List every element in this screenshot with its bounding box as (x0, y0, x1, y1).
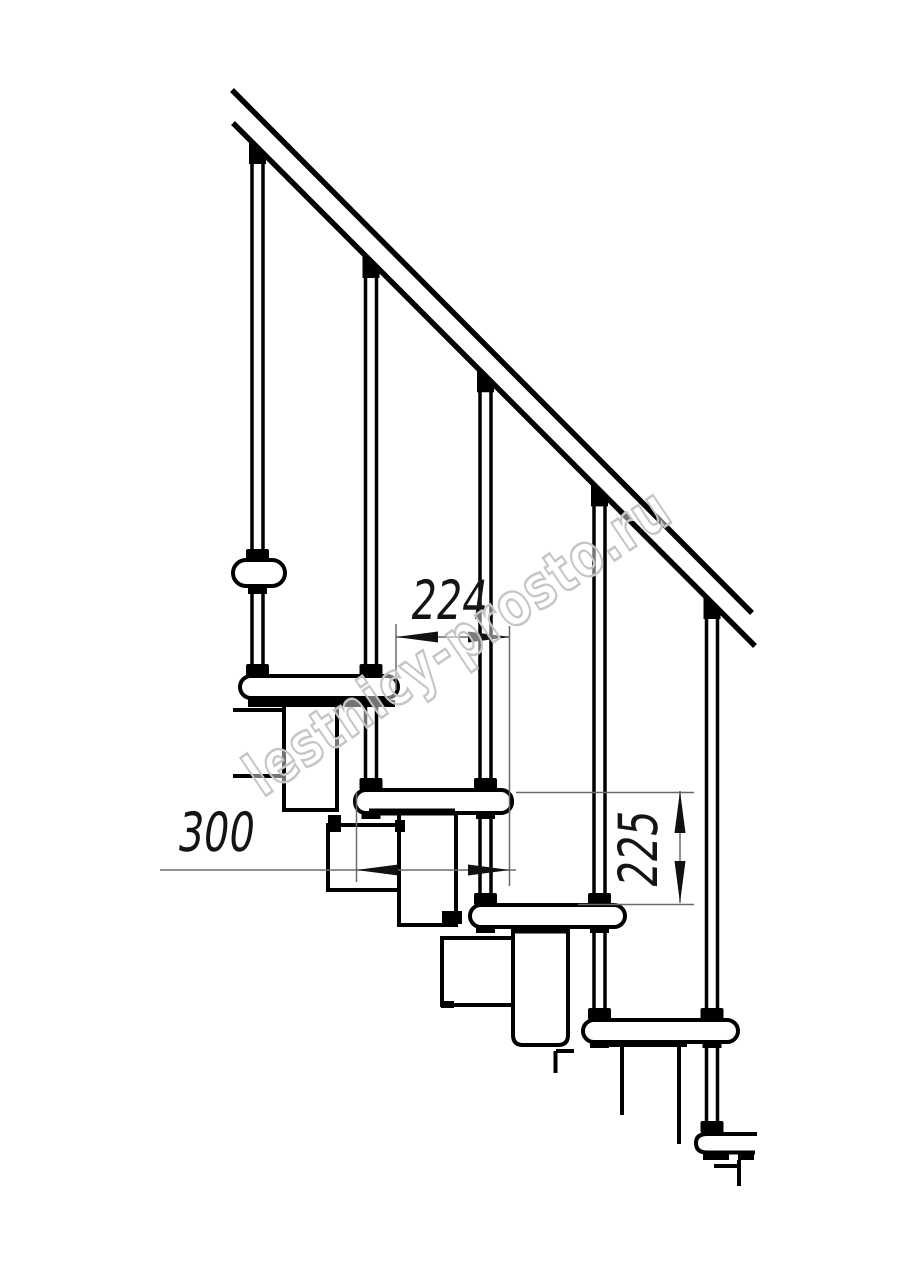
upper-rail-end-collar (233, 560, 285, 586)
tread-3 (470, 905, 625, 927)
baluster-flange (246, 549, 269, 561)
module-vertical-2 (399, 813, 456, 925)
handrail-bottom-line (233, 123, 755, 646)
module-joint (441, 1001, 454, 1008)
baluster-nut (476, 813, 495, 819)
baluster-nut (476, 927, 495, 933)
baluster-nut (590, 1042, 609, 1048)
baluster-flange (474, 778, 497, 790)
baluster-flange (360, 778, 383, 790)
baluster-flange (588, 1008, 611, 1020)
baluster-nut (248, 698, 267, 707)
module-horizontal-2 (328, 825, 404, 890)
tread-4 (583, 1020, 738, 1042)
module-vertical-3 (513, 927, 568, 1045)
tread-5-partial (696, 1134, 757, 1153)
arrowhead-down (675, 861, 686, 903)
handrail (232, 90, 755, 646)
arrowhead-right (468, 865, 510, 876)
baluster-nut (248, 586, 267, 594)
baluster-1 (252, 160, 263, 676)
arrowhead-up (675, 791, 686, 833)
baluster-flange (246, 664, 269, 676)
baluster-flange (701, 1121, 724, 1133)
module-joint (442, 911, 462, 924)
dim-label-225: 225 (608, 806, 670, 891)
module-joint (328, 815, 341, 832)
baluster-flange (588, 893, 611, 905)
baluster-nut (703, 1042, 722, 1048)
baluster-nut (590, 927, 609, 933)
module-horizontal-3 (442, 938, 518, 1005)
baluster-flange (701, 1008, 724, 1020)
staircase-drawing: 224 300 225 lestnicy-prosto.ru (0, 0, 914, 1280)
module-joint (395, 820, 405, 832)
baluster-nut (362, 813, 381, 819)
dim-label-300: 300 (174, 802, 259, 864)
baluster-5 (707, 615, 718, 1133)
baluster-flange (474, 893, 497, 905)
